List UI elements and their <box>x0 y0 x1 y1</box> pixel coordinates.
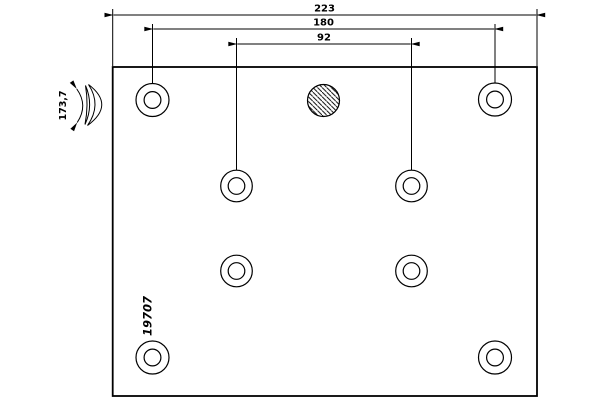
lining-cross-section-inner <box>85 86 90 125</box>
side-view-curvature-symbol: 173,7 <box>58 85 102 126</box>
dimension-label-outer-hole-spacing: 180 <box>313 18 334 29</box>
drawing-canvas: 223 180 92 <box>0 0 600 400</box>
dimension-label-inner-hole-spacing: 92 <box>317 33 331 44</box>
dimension-label-arc-width: 173,7 <box>58 90 69 120</box>
arc-dimension-line <box>77 89 83 123</box>
dimension-label-overall-length: 223 <box>314 4 335 15</box>
part-number-label: 19707 <box>141 296 155 336</box>
hatched-hole <box>308 85 340 117</box>
brake-lining-drawing: 223 180 92 <box>0 0 600 400</box>
